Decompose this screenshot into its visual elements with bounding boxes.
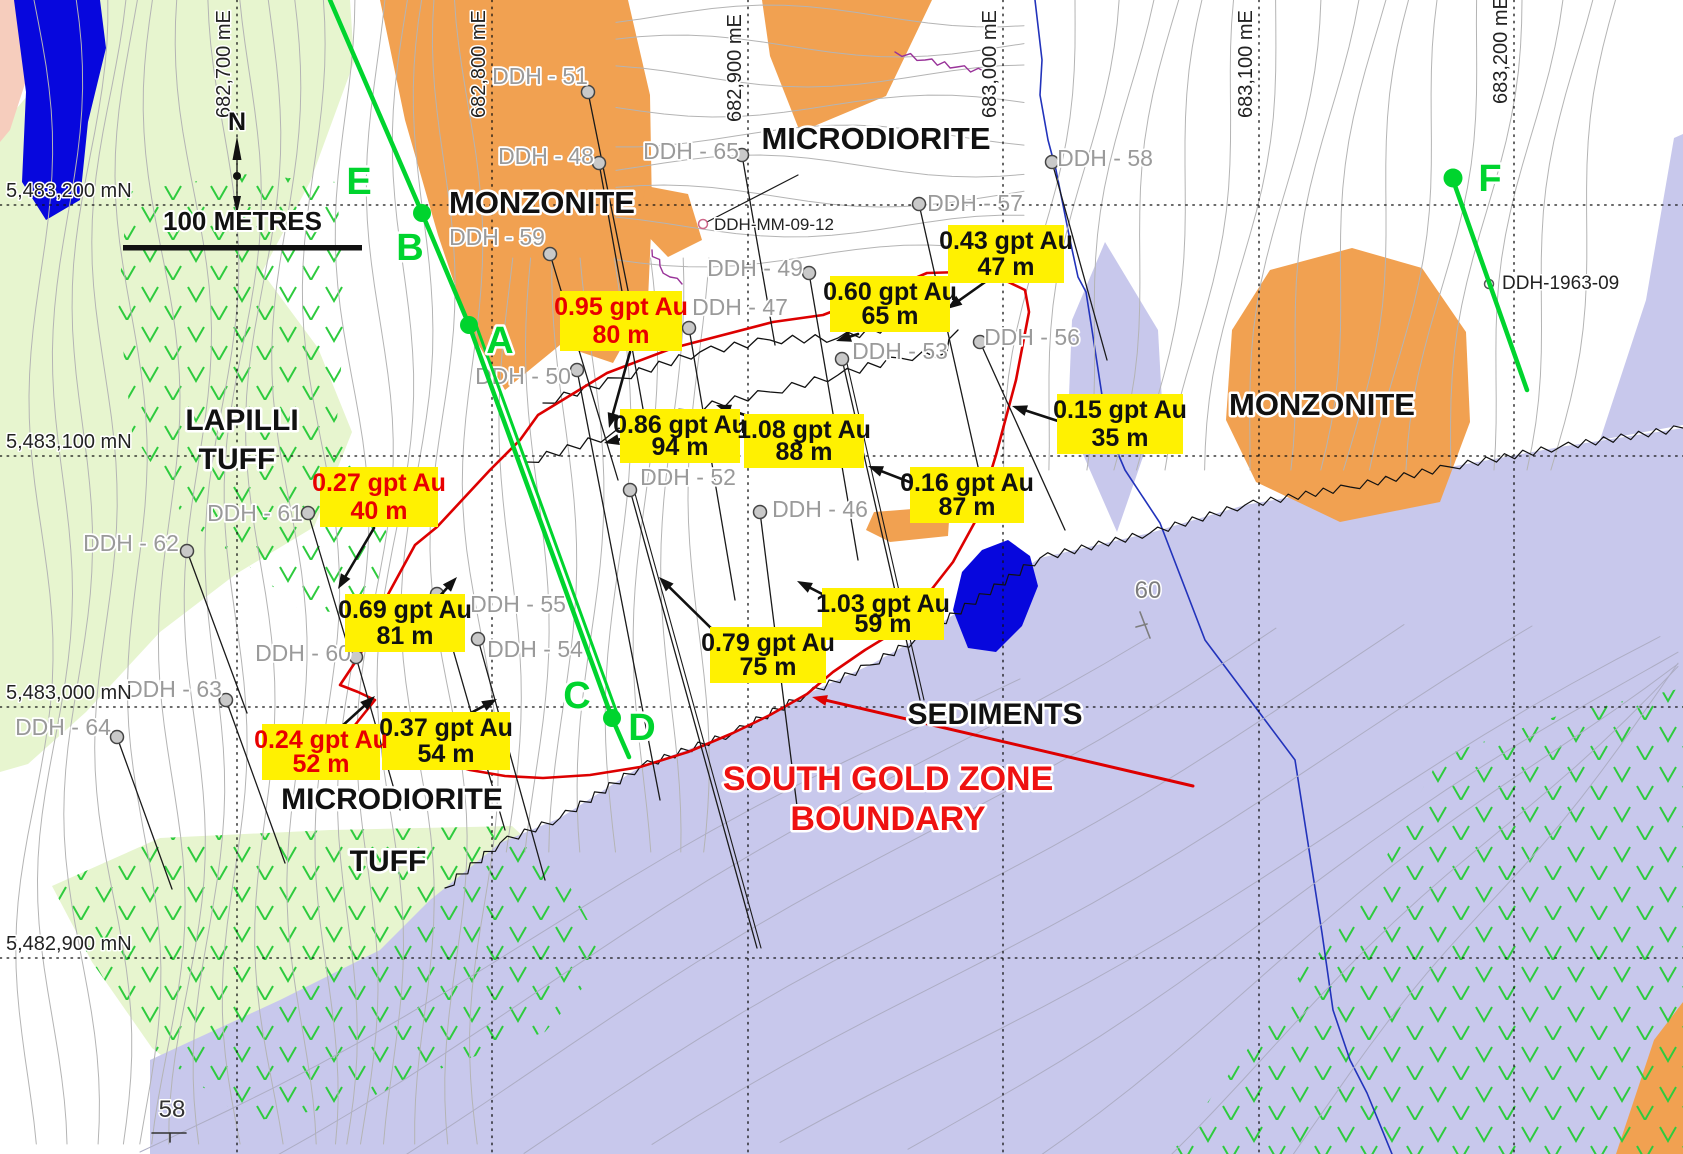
section-point bbox=[603, 709, 621, 727]
drillhole-label: DDH-1963-09 bbox=[1502, 273, 1619, 294]
drillhole-collar bbox=[699, 220, 708, 229]
section-letter-a: A bbox=[486, 320, 513, 362]
drillhole-collar bbox=[302, 507, 315, 520]
drillhole-collar bbox=[754, 506, 767, 519]
drillhole-label: DDH - 53 bbox=[852, 338, 948, 364]
assay-depth: 54 m bbox=[418, 740, 475, 768]
unit-label: TUFF bbox=[199, 443, 276, 476]
north-arrow-pivot bbox=[233, 172, 241, 180]
drillhole-label: DDH - 60 bbox=[255, 640, 351, 666]
unit-label: SEDIMENTS bbox=[907, 698, 1082, 731]
drillhole-collar bbox=[472, 633, 485, 646]
contour-line bbox=[1551, 0, 1616, 470]
easting-label: 682,900 mE bbox=[724, 14, 746, 122]
dip-value: 58 bbox=[159, 1096, 186, 1123]
drillhole-label: DDH - 58 bbox=[1057, 145, 1153, 171]
unit-label: MONZONITE bbox=[1229, 387, 1415, 422]
section-letter-d: D bbox=[628, 707, 655, 749]
northing-label: 5,482,900 mN bbox=[6, 933, 132, 955]
assay-grade: 0.27 gpt Au bbox=[312, 469, 446, 497]
drillhole-label: DDH - 57 bbox=[927, 190, 1023, 216]
easting-label: 683,000 mE bbox=[979, 10, 1001, 118]
drillhole-collar bbox=[913, 198, 926, 211]
drillhole-label: DDH - 61 bbox=[207, 500, 303, 526]
unit-label: MICRODIORITE bbox=[761, 121, 990, 156]
drillhole-label: DDH - 48 bbox=[498, 143, 594, 169]
drillhole-collar bbox=[624, 484, 637, 497]
assay-depth: 35 m bbox=[1092, 424, 1149, 452]
drillhole-collar bbox=[683, 322, 696, 335]
section-letter-e: E bbox=[346, 161, 371, 203]
section-point bbox=[413, 204, 431, 222]
assay-depth: 40 m bbox=[351, 497, 408, 525]
assay-depth: 94 m bbox=[652, 433, 709, 461]
drillhole-label: DDH - 47 bbox=[692, 294, 788, 320]
assay-arrow-head bbox=[1012, 405, 1028, 416]
unit-label: MONZONITE bbox=[449, 185, 635, 220]
drillhole-label: DDH - 65 bbox=[643, 138, 739, 164]
contour-line bbox=[1527, 0, 1593, 470]
assay-depth: 59 m bbox=[855, 610, 912, 638]
assay-depth: 80 m bbox=[593, 321, 650, 349]
assay-depth: 75 m bbox=[740, 653, 797, 681]
scale-bar bbox=[123, 245, 362, 251]
south-gold-zone-label: SOUTH GOLD ZONE bbox=[723, 760, 1054, 798]
assay-depth: 47 m bbox=[978, 253, 1035, 281]
drillhole-label: DDH - 56 bbox=[984, 324, 1080, 350]
section-letter-b: B bbox=[396, 227, 423, 269]
section-point bbox=[460, 316, 478, 334]
assay-arrow-head bbox=[481, 699, 497, 711]
assay-grade: 0.37 gpt Au bbox=[379, 714, 513, 742]
scale-bar-label: 100 METRES bbox=[163, 206, 322, 236]
drillhole-collar bbox=[803, 267, 816, 280]
section-letter-c: C bbox=[563, 675, 590, 717]
northing-label: 5,483,100 mN bbox=[6, 431, 132, 453]
geology-layer bbox=[0, 0, 1683, 1154]
drillhole-label: DDH - 51 bbox=[492, 63, 588, 89]
drillhole-collar bbox=[544, 248, 557, 261]
northing-label: 5,483,000 mN bbox=[6, 682, 132, 704]
easting-label: 682,800 mE bbox=[468, 10, 490, 118]
easting-label: 682,700 mE bbox=[213, 10, 235, 118]
assay-depth: 65 m bbox=[862, 302, 919, 330]
assay-arrow-head bbox=[868, 466, 884, 477]
drillhole-label: DDH - 46 bbox=[772, 496, 868, 522]
assay-grade: 0.43 gpt Au bbox=[939, 227, 1073, 255]
assay-arrow-head bbox=[797, 581, 813, 593]
dip-value: 60 bbox=[1135, 577, 1162, 604]
assay-grade: 0.95 gpt Au bbox=[554, 293, 688, 321]
drillhole-label: DDH - 52 bbox=[640, 464, 736, 490]
monzonite-area bbox=[1226, 248, 1470, 522]
drillhole-label: DDH - 59 bbox=[449, 224, 545, 250]
drillhole-collar bbox=[111, 731, 124, 744]
drillhole-collar bbox=[350, 651, 363, 664]
south-gold-zone-label: BOUNDARY bbox=[790, 800, 986, 838]
drillhole-label: DDH - 55 bbox=[470, 591, 566, 617]
assay-depth: 87 m bbox=[939, 493, 996, 521]
unit-label: MICRODIORITE bbox=[281, 783, 503, 816]
drillhole-label: DDH - 49 bbox=[707, 255, 803, 281]
drillhole-label: DDH - 54 bbox=[487, 636, 583, 662]
drillhole-collar bbox=[181, 545, 194, 558]
assay-grade: 0.15 gpt Au bbox=[1053, 396, 1187, 424]
north-arrow-label: N bbox=[228, 108, 246, 136]
unit-label: LAPILLI bbox=[185, 404, 298, 437]
map-canvas: DDH - 51DDH - 48DDH - 65DDH - 58DDH - 57… bbox=[0, 0, 1683, 1154]
section-point bbox=[1444, 169, 1463, 188]
assay-arrow bbox=[665, 583, 716, 633]
section-letter-f: F bbox=[1478, 158, 1501, 200]
drillhole-label: DDH - 63 bbox=[126, 676, 222, 702]
geological-map: DDH - 51DDH - 48DDH - 65DDH - 58DDH - 57… bbox=[0, 0, 1683, 1154]
drillhole-label: DDH - 64 bbox=[15, 714, 111, 740]
assay-depth: 81 m bbox=[377, 622, 434, 650]
drillhole-label: DDH-MM-09-12 bbox=[714, 215, 834, 234]
drillhole-collar bbox=[593, 157, 606, 170]
assay-depth: 52 m bbox=[293, 750, 350, 778]
drillhole-collar bbox=[836, 353, 849, 366]
assay-grade: 0.69 gpt Au bbox=[338, 596, 472, 624]
assay-depth: 88 m bbox=[776, 438, 833, 466]
easting-label: 683,200 mE bbox=[1490, 0, 1512, 104]
drillhole-label: DDH - 62 bbox=[83, 530, 179, 556]
unit-label: TUFF bbox=[350, 845, 427, 878]
easting-label: 683,100 mE bbox=[1235, 10, 1257, 118]
northing-label: 5,483,200 mN bbox=[6, 180, 132, 202]
drillhole-collar bbox=[571, 364, 584, 377]
